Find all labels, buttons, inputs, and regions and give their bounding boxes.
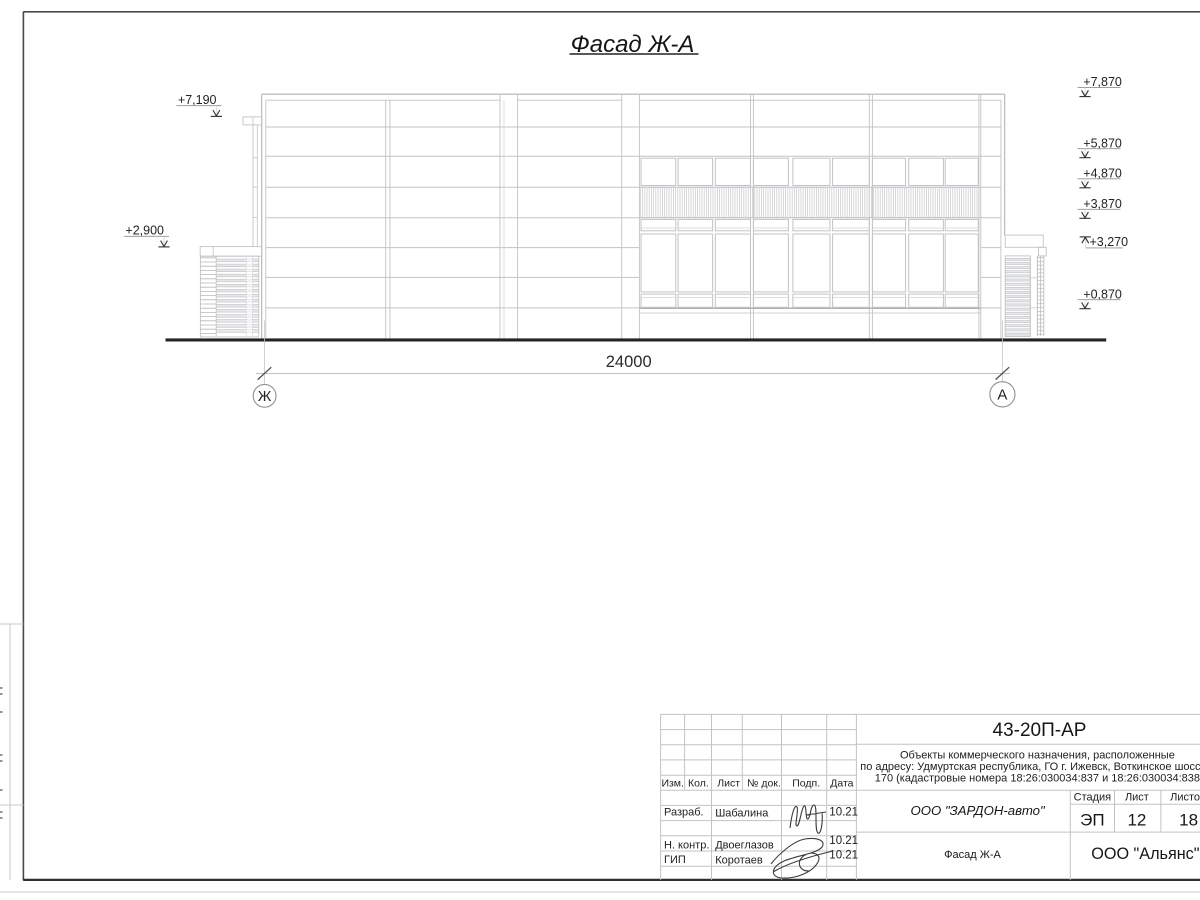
svg-text:ГИП: ГИП: [664, 854, 686, 866]
svg-text:Лист: Лист: [717, 778, 740, 790]
svg-text:12: 12: [1127, 811, 1146, 830]
svg-text:Листов: Листов: [1170, 792, 1200, 804]
svg-text:Объекты коммерческого назначен: Объекты коммерческого назначения, распол…: [900, 750, 1175, 762]
svg-text:+7,190: +7,190: [178, 93, 217, 107]
svg-text:+0,870: +0,870: [1083, 287, 1122, 301]
svg-text:Дата: Дата: [830, 778, 853, 790]
svg-text:Фасад Ж-А: Фасад Ж-А: [944, 849, 1001, 861]
svg-text:по адресу: Удмуртская республи: по адресу: Удмуртская республика, ГО г. …: [860, 761, 1200, 773]
svg-text:+5,870: +5,870: [1083, 136, 1122, 150]
svg-text:Разраб.: Разраб.: [664, 807, 704, 819]
svg-text:ООО "Альянс": ООО "Альянс": [1091, 845, 1199, 863]
svg-text:+2,900: +2,900: [125, 224, 164, 238]
svg-text:+3,870: +3,870: [1083, 197, 1122, 211]
svg-text:24000: 24000: [606, 353, 652, 371]
svg-text:Н. контр.: Н. контр.: [664, 840, 709, 852]
svg-text:Кол.: Кол.: [688, 778, 709, 790]
svg-text:10.21: 10.21: [829, 835, 858, 847]
svg-text:10.21: 10.21: [829, 806, 858, 818]
svg-text:Изм.: Изм.: [661, 778, 684, 790]
svg-text:+3,270: +3,270: [1090, 235, 1129, 249]
svg-text:+4,870: +4,870: [1083, 166, 1122, 180]
svg-text:№ док.: № док.: [747, 778, 781, 790]
svg-text:10.21: 10.21: [829, 850, 858, 862]
svg-text:Подп.: Подп.: [792, 778, 820, 790]
svg-text:Шабалина: Шабалина: [715, 807, 769, 819]
svg-text:А: А: [997, 387, 1007, 404]
svg-text:18: 18: [1179, 811, 1198, 830]
svg-text:ООО "ЗАРДОН-авто": ООО "ЗАРДОН-авто": [911, 803, 1046, 818]
svg-text:43-20П-АР: 43-20П-АР: [993, 720, 1087, 741]
svg-text:Коротаев: Коротаев: [715, 854, 763, 866]
svg-text:+7,870: +7,870: [1083, 75, 1122, 89]
svg-text:170 (кадастровые номера 18:26:: 170 (кадастровые номера 18:26:030034:837…: [875, 773, 1200, 785]
svg-text:Ж: Ж: [258, 389, 272, 405]
svg-text:Стадия: Стадия: [1074, 792, 1112, 804]
svg-text:ЭП: ЭП: [1080, 811, 1104, 830]
svg-text:Двоеглазов: Двоеглазов: [715, 840, 774, 852]
svg-text:Лист: Лист: [1125, 792, 1149, 804]
